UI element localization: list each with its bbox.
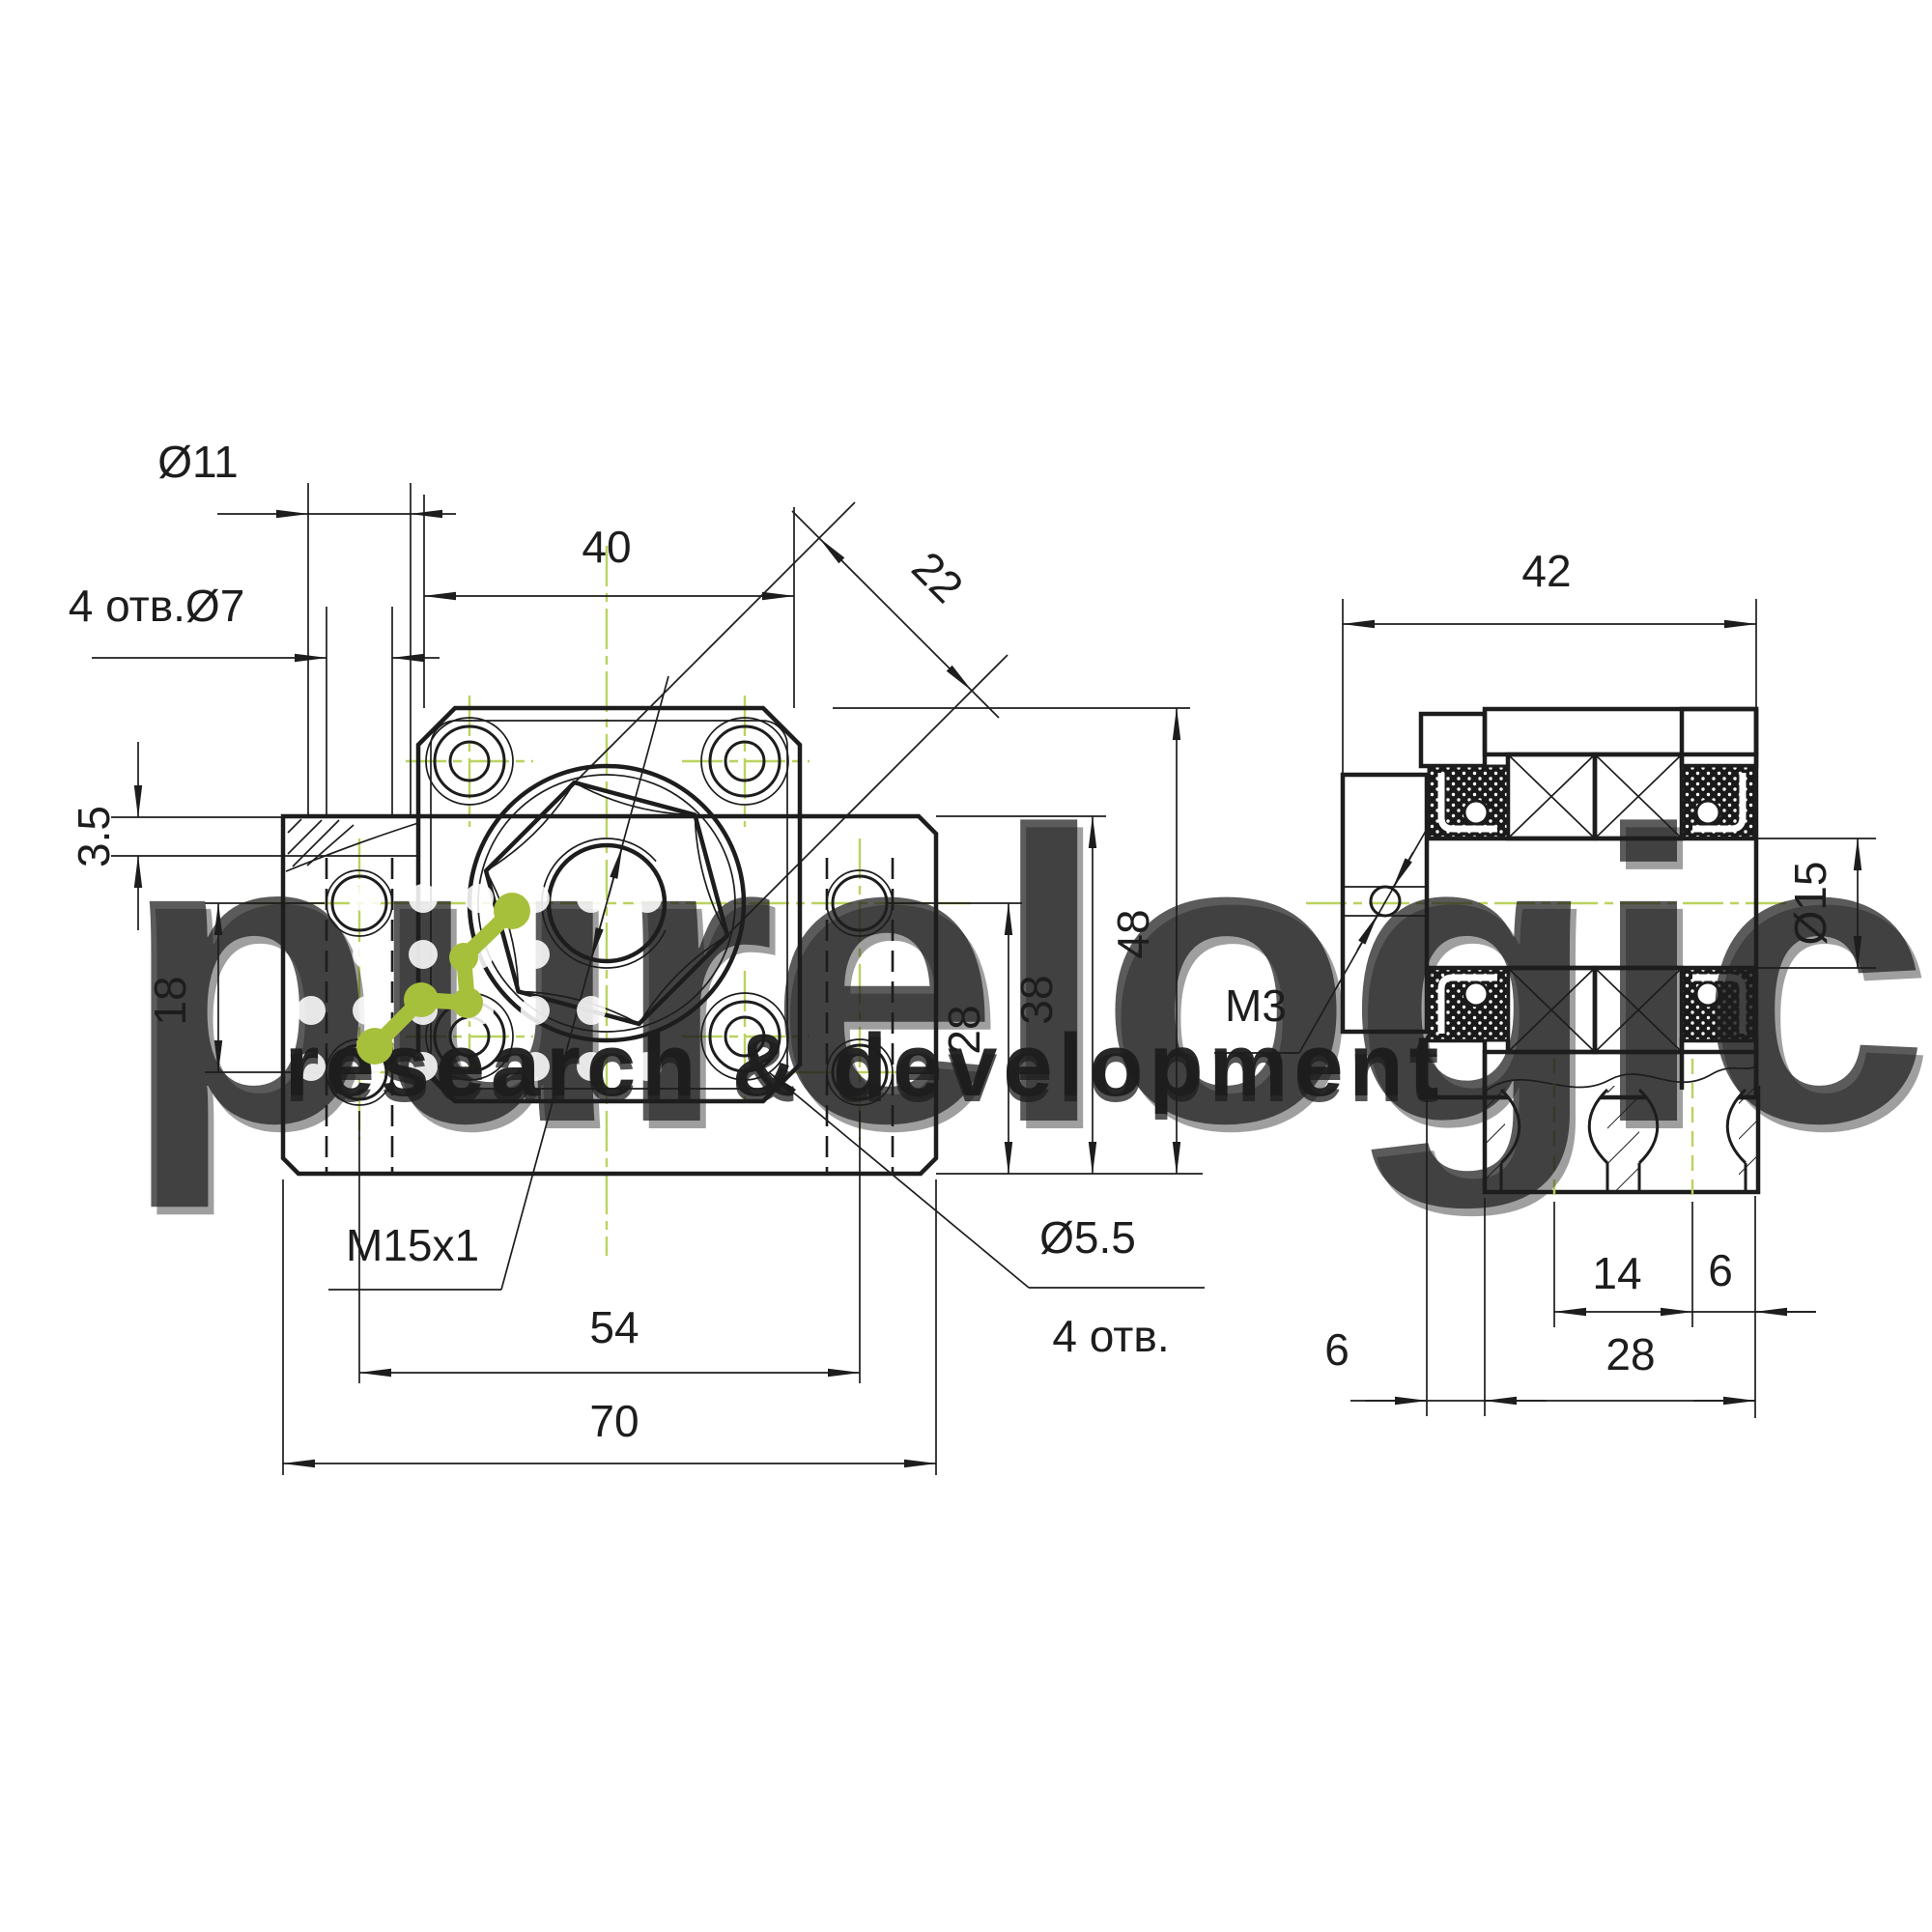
drawing-canvas: 22 Ø11 4 отв.Ø7 40 3.5 (0, 0, 1932, 1932)
drawing-page: 22 Ø11 4 отв.Ø7 40 3.5 (0, 0, 1932, 1932)
dim-holes4-label: 4 отв. (1052, 1311, 1169, 1361)
dim-11-label: Ø11 (157, 437, 239, 487)
dim-6-top-label: 6 (1708, 1245, 1733, 1295)
dim-14-label: 14 (1592, 1248, 1641, 1298)
dim-55-label: Ø5.5 (1039, 1212, 1136, 1263)
dim-28-bottom-label: 28 (1605, 1329, 1655, 1379)
dim-40-label: 40 (582, 522, 631, 572)
dim-70-label: 70 (589, 1396, 639, 1446)
dim-6-left-label: 6 (1324, 1324, 1350, 1375)
dim-22-label: 22 (902, 542, 973, 612)
dim-42-label: 42 (1521, 546, 1571, 596)
dim-35-label: 3.5 (69, 806, 119, 867)
watermark-brand: purelogic (122, 746, 1921, 1211)
watermark-tagline: research & development (285, 1016, 1445, 1115)
dim-holes7-label: 4 отв.Ø7 (69, 581, 245, 631)
watermark: purelogic purelogic research & developme… (122, 746, 1927, 1219)
dim-m15-label: M15x1 (346, 1220, 479, 1270)
dim-42: 42 (1343, 546, 1756, 775)
dim-54-label: 54 (589, 1302, 639, 1352)
